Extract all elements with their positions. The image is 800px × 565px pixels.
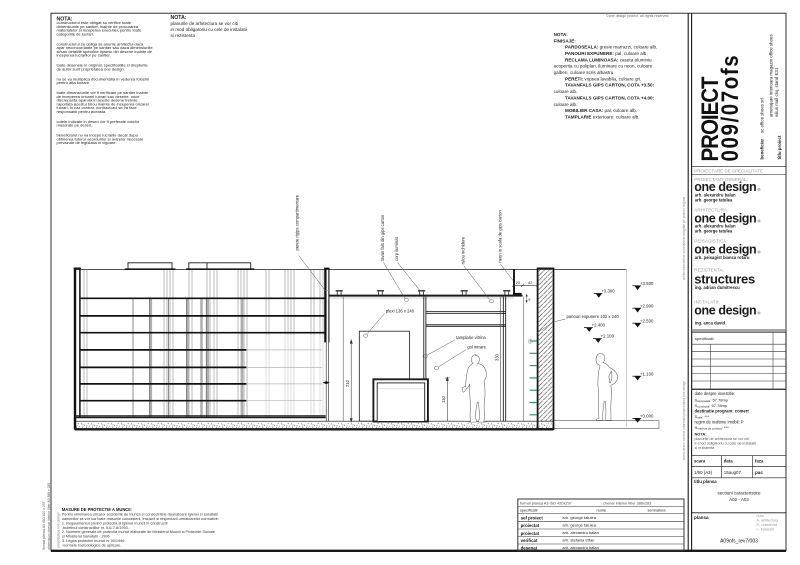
svg-text:pac: pac [755,470,763,475]
svg-text:destinatie program: comert: destinatie program: comert [695,408,750,413]
svg-text:-buletinul constructiilor nr.: -buletinul constructiilor nr. 5-6-7-8/19… [62,526,129,530]
svg-text:planurile de arhitectura se vo: planurile de arhitectura se vor citi [695,437,749,441]
svg-text:in mod obligatoriu cu cele de: in mod obligatoriu cu cele de instalatii [695,442,756,446]
svg-text:®: ® [758,187,761,192]
svg-text:rulou inchidere: rulou inchidere [461,236,466,264]
svg-text:galben, culoare scris albastru: galben, culoare scris albastru. [554,70,615,75]
svg-text:regim de inaltime imobil: P: regim de inaltime imobil: P [695,419,744,424]
svg-text:data: data [724,458,733,463]
svg-text:A09ofs_rev7/003: A09ofs_rev7/003 [720,539,758,545]
svg-text:titlu proiect: titlu proiect [777,135,782,159]
svg-text:15aug07: 15aug07 [724,470,742,475]
svg-text:titlu plansa: titlu plansa [694,479,717,484]
svg-text:PANOURI EXPUNERE: pal, culoare: PANOURI EXPUNERE: pal, culoare alb. [565,51,648,56]
svg-text:1/50 (A3): 1/50 (A3) [694,470,713,475]
svg-text:NOTA:: NOTA: [695,432,707,437]
svg-text:2. Normele generale de protect: 2. Normele generale de protectia muncii … [62,530,215,534]
svg-text:RECLAMA LUMINOASA: caseta alum: RECLAMA LUMINOASA: caseta aluminiu [565,57,652,62]
svg-text:arhitectura detine semnaturile: arhitectura detine semnaturile olografe … [682,197,686,280]
svg-text:sc office shoes srl: sc office shoes srl [759,98,764,133]
svg-text:semnatura: semnatura [648,509,667,513]
svg-text:330: 330 [494,353,499,361]
svg-text:si Ministerul Sanatatii - 1996: si Ministerul Sanatatii - 1996 [62,535,110,539]
svg-text:+3.300: +3.300 [601,289,615,294]
svg-text:tavan fals din gips carton: tavan fals din gips carton [380,214,385,261]
svg-text:prevazute de legislatia in vig: prevazute de legislatia in vigoare. [57,140,117,145]
svg-text:plexi 136 x 240: plexi 136 x 240 [386,308,415,313]
svg-text:culoare alb.: culoare alb. [554,89,578,94]
svg-text:MASURE DE PROTECTIE A MUNCII:: MASURE DE PROTECTIE A MUNCII: [62,507,132,512]
svg-text:arh. george tatulea: arh. george tatulea [695,229,733,234]
svg-text:arh. george tatulea: arh. george tatulea [562,523,596,528]
svg-text:oamenilor se vor lua toate mas: oamenilor se vor lua toate masurile cuno… [62,517,219,521]
svg-text:. chenar interior liber 3: . chenar interior liber 386x283 [601,501,651,505]
svg-text:®: ® [758,218,761,223]
svg-text:+2.400: +2.400 [592,323,606,328]
svg-text:specificatii: specificatii [520,509,538,513]
svg-text:R- rezistenta: R- rezistenta [757,523,777,527]
svg-text:proprietatea one design: proprietatea one design [56,512,60,548]
svg-text:dimensiuni chenar interior lib: dimensiuni chenar interior liber A3 386 … [47,482,51,549]
svg-text:®: ® [758,311,761,316]
svg-text:corp iluminat: corp iluminat [394,236,399,261]
svg-text:proiectat: proiectat [521,531,540,536]
svg-text:®: ® [758,250,761,255]
svg-text:plansa: plansa [694,515,709,520]
svg-text:+1.100: +1.100 [640,371,654,376]
svg-text:PERETI: vopsea lavabila, culoa: PERETI: vopsea lavabila, culoare gri. [565,76,641,81]
svg-text:inceperea lucrarilor pe santie: inceperea lucrarilor pe santier. [57,53,111,58]
svg-text:ing. anca david: ing. anca david [695,320,726,325]
svg-text:arh. stefania trifan: arh. stefania trifan [562,538,594,543]
svg-text:responsabil pentru aceasta.: responsabil pentru aceasta. [57,109,107,114]
svg-text:ing. adrian dumitrescu: ing. adrian dumitrescu [695,285,740,290]
svg-text:si rezistenta: si rezistenta [695,446,716,450]
svg-text:panouri expunere 102 x 240: panouri expunere 102 x 240 [567,314,620,319]
svg-text:A- arhitectura: A- arhitectura [757,518,779,522]
svg-text:arh. george tatulea: arh. george tatulea [562,515,596,520]
svg-text:desenat: desenat [521,546,538,551]
svg-text:gol intrare: gol intrare [467,345,486,350]
svg-text:42: 42 [528,280,532,285]
svg-text:009/07ofs: 009/07ofs [717,54,744,162]
svg-text:nume: nume [597,509,607,513]
svg-text:+0.000: +0.000 [640,414,654,419]
svg-text:arh. peisagist bianca rotaru: arh. peisagist bianca rotaru [695,255,750,260]
svg-text:format plansa A3 ISO 420x29: format plansa A3 ISO 420x297 [520,501,572,505]
svg-text:in mod obligatoriu cu cele de: in mod obligatoriu cu cele de instalatii [171,27,247,32]
svg-text:PROIECTARE DE SPECIALITATE: PROIECTARE DE SPECIALITATE [694,169,763,174]
svg-text:si rezistenta: si rezistenta [171,33,196,38]
svg-text:planurile de arhitectura se vo: planurile de arhitectura se vor citi [171,21,238,26]
svg-text:culoare alb.: culoare alb. [554,102,578,107]
svg-text:-normele metodologice de aplic: -normele metodologice de aplicare. [62,544,121,548]
svg-text:MOBILIER CASA: pal, culoare al: MOBILIER CASA: pal, culoare alb. [565,108,637,113]
svg-text:1. Regulamentul privind protec: 1. Regulamentul privind protectia si igi… [62,521,168,525]
svg-text:+2.100: +2.100 [601,334,615,339]
svg-text:faza: faza [755,458,764,463]
svg-text:scara: scara [694,458,706,463]
svg-text:acest desen contine informatii: acest desen contine informatii proprieta… [682,381,686,460]
svg-text:Pentru eliminarea oricaror ac: Pentru eliminarea oricaror accidente de … [62,512,218,516]
svg-text:+2.900: +2.900 [640,303,654,308]
svg-text:TAVANFALS GIPS CARTON, COTA +3: TAVANFALS GIPS CARTON, COTA +3.50: [565,83,655,88]
svg-text:nota:: nota: [757,514,765,518]
svg-text:verificat: verificat [521,538,538,543]
svg-text:specificatii: specificatii [695,336,714,341]
svg-text:tamplarie vitrina: tamplarie vitrina [456,335,486,340]
svg-text:TAVANFALS GIPS CARTON, COTA +4: TAVANFALS GIPS CARTON, COTA +4.00: [565,95,655,100]
svg-text:arh. george tatulea: arh. george tatulea [695,197,733,202]
svg-text:iulius mall cluj, stand E31: iulius mall cluj, stand E31 [774,67,779,117]
svg-text:sectiuni caracteristice: sectiuni caracteristice [717,491,761,496]
svg-text:©one design proiect. all right: ©one design proiect. all rights reserved… [606,14,669,18]
svg-text:Hmaxima (la cornisa): ***: Hmaxima (la cornisa): *** [695,425,730,431]
svg-text:neon in scafa de gips carton: neon in scafa de gips carton [497,210,502,263]
svg-text:one design: one design [694,304,756,318]
svg-text:+2.500: +2.500 [640,318,654,323]
svg-text:110: 110 [441,395,446,402]
svg-text:arh. alexandru balan: arh. alexandru balan [562,545,598,550]
svg-text:categoriile de lucrari.: categoriile de lucrari. [57,31,94,36]
svg-text:I - instalatii: I - instalatii [757,528,774,532]
svg-text:NOTA:: NOTA: [171,15,187,21]
svg-text:beneficiar: beneficiar [759,138,764,159]
svg-text:date despre investitie:: date despre investitie: [695,391,736,396]
svg-text:3. Legea protectiei muncii nr: 3. Legea protectiei muncii nr 90/1996 [62,539,124,543]
svg-text:arh. alexandru balan: arh. alexandru balan [562,530,598,535]
svg-text:PARDOSEALA: gresie marrazzi, c: PARDOSEALA: gresie marrazzi, culoare alb… [565,45,657,50]
svg-text:masurate pe desen.: masurate pe desen. [57,123,93,128]
svg-text:a: a [528,297,530,301]
svg-text:+3.500: +3.500 [640,281,654,286]
svg-text:NOTA:: NOTA: [554,32,569,37]
svg-text:sef proiect: sef proiect [521,516,544,521]
svg-text:proiectat: proiectat [521,523,540,528]
svg-text:A02 - A02: A02 - A02 [729,497,749,502]
svg-text:format plansa A3 ISO: format plansa A3 ISO 420 x 297 [42,501,46,549]
svg-text:acoperita cu poliplan, ilumina: acoperita cu poliplan, iluminare cu neon… [554,64,653,69]
svg-text:TAMPLARIE exterioare: culoare: TAMPLARIE exterioare: culoare alb. [565,114,639,119]
svg-text:pentru alta lucrare.: pentru alta lucrare. [57,80,91,85]
svg-text:FINISAJE:: FINISAJE: [554,38,577,43]
svg-text:perete rigips compartimentare: perete rigips compartimentare [294,194,299,250]
svg-text:de autor sunt proprietatea one: de autor sunt proprietatea one design. [57,66,125,71]
svg-text:210: 210 [345,379,350,387]
